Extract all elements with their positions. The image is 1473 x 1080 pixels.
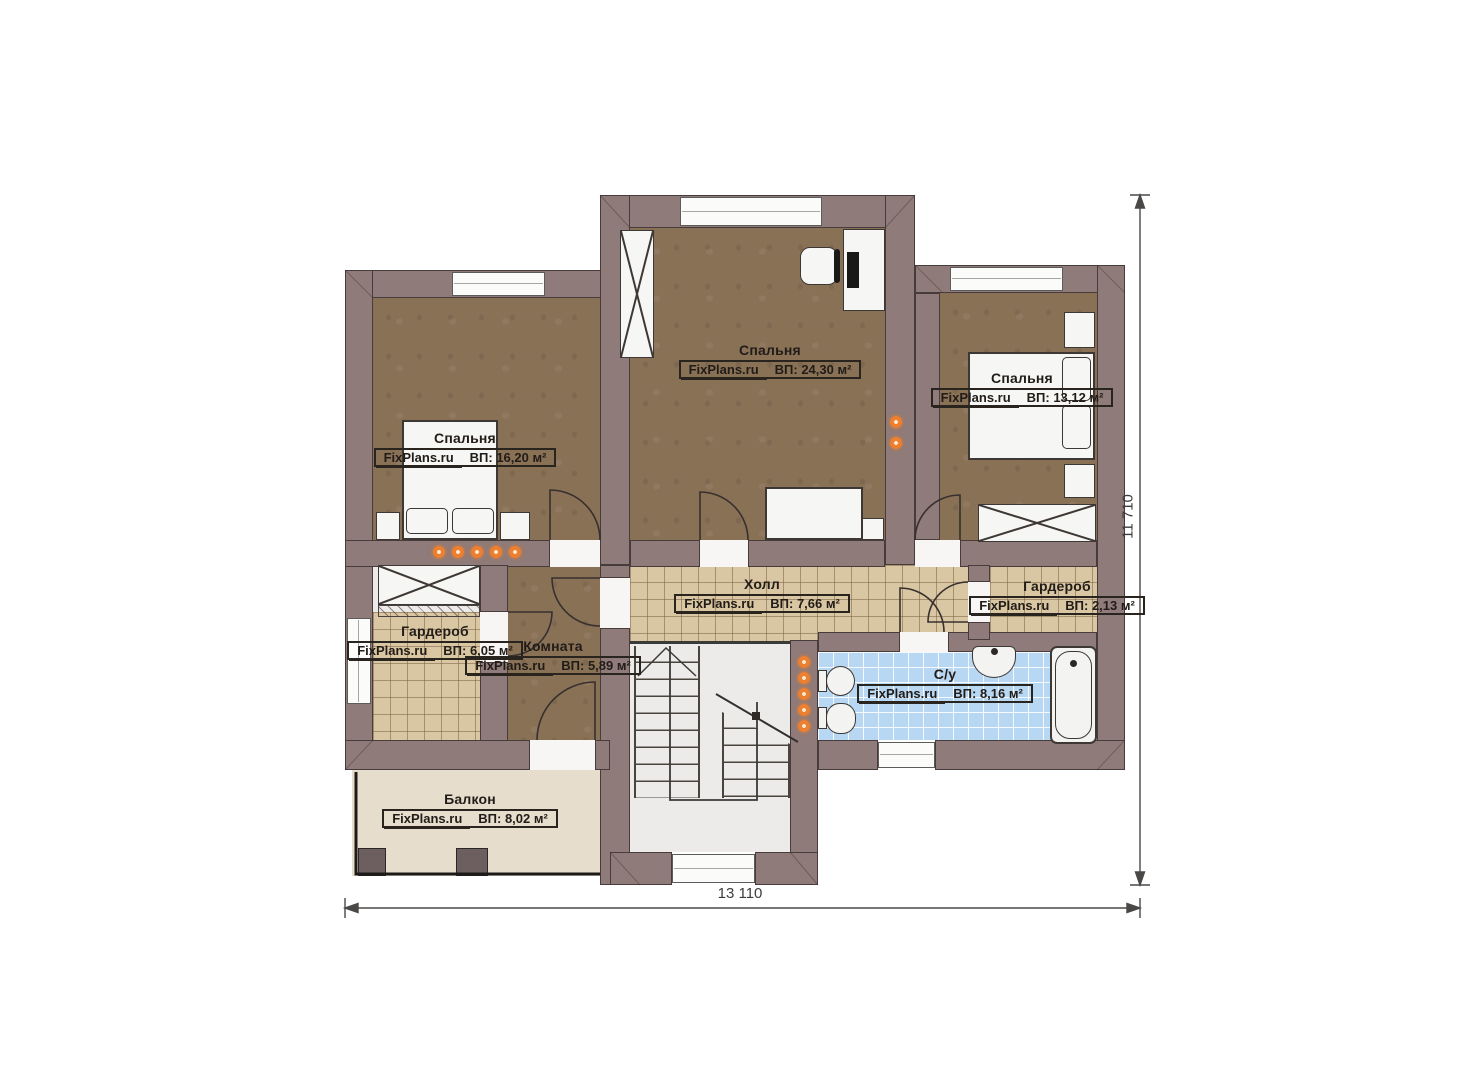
- door-opening: [530, 740, 595, 770]
- heating-dot: [798, 704, 810, 716]
- room-name: Балкон: [444, 791, 496, 807]
- watermark: FixPlans.ru: [933, 389, 1019, 408]
- room-name: Спальня: [991, 370, 1053, 386]
- chair-backrest: [834, 249, 840, 283]
- bathtub: [1050, 646, 1097, 744]
- window: [452, 272, 545, 296]
- room-name: С/у: [934, 666, 956, 682]
- wall: [595, 740, 610, 770]
- wall: [345, 740, 530, 770]
- room-label-balcony: Балкон FixPlans.ruВП: 8,02 м²: [405, 791, 535, 828]
- hall-stair-edge: [630, 641, 790, 644]
- door-opening: [550, 540, 600, 567]
- heating-dot: [798, 688, 810, 700]
- balcony-post: [456, 848, 488, 876]
- nightstand: [500, 512, 530, 540]
- dimension-width-label: 13 110: [660, 885, 820, 902]
- wardrobe-cabinet: [378, 565, 480, 605]
- heating-dot: [798, 656, 810, 668]
- heating-dot: [471, 546, 483, 558]
- pillow: [406, 508, 448, 534]
- nightstand: [862, 518, 884, 540]
- heating-dot: [890, 437, 902, 449]
- stair-flight: [634, 646, 700, 798]
- watermark: FixPlans.ru: [859, 685, 945, 704]
- nightstand: [376, 512, 400, 540]
- room-label-bathroom: С/у FixPlans.ruВП: 8,16 м²: [880, 666, 1010, 703]
- door-opening: [900, 632, 948, 652]
- room-label-wardrobe-left: Гардероб FixPlans.ruВП: 6,05 м²: [370, 623, 500, 660]
- floor-plan: Спальня FixPlans.ruВП: 24,30 м² Спальня …: [0, 0, 1473, 1080]
- heating-dot: [798, 672, 810, 684]
- stair-flight: [722, 712, 790, 798]
- door-opening: [915, 540, 960, 567]
- window: [950, 267, 1063, 291]
- room-area: ВП: 5,89 м²: [553, 657, 639, 674]
- desk-chair: [800, 247, 838, 285]
- wall: [818, 740, 878, 770]
- window: [680, 197, 822, 226]
- pillow: [452, 508, 494, 534]
- dimension-height-label: 11 710: [1120, 477, 1137, 557]
- wall: [968, 565, 990, 582]
- pillow: [1062, 405, 1091, 449]
- room-area: ВП: 7,66 м²: [762, 595, 848, 612]
- wall: [610, 852, 672, 885]
- watermark: FixPlans.ru: [384, 810, 470, 829]
- monitor: [847, 252, 859, 288]
- door-opening: [700, 540, 748, 567]
- room-label-wardrobe-right: Гардероб FixPlans.ruВП: 2,13 м²: [992, 578, 1122, 615]
- wardrobe-cabinet: [620, 230, 654, 358]
- room-area: ВП: 24,30 м²: [767, 361, 860, 378]
- room-area: ВП: 2,13 м²: [1057, 597, 1143, 614]
- wall: [885, 195, 915, 565]
- room-area: ВП: 8,16 м²: [945, 685, 1031, 702]
- room-label-room: Комната FixPlans.ruВП: 5,89 м²: [488, 638, 618, 675]
- room-name: Гардероб: [401, 623, 469, 639]
- watermark: FixPlans.ru: [376, 449, 462, 468]
- room-area: ВП: 13,12 м²: [1019, 389, 1112, 406]
- door-opening: [600, 578, 630, 628]
- watermark: FixPlans.ru: [676, 595, 762, 614]
- wall: [630, 540, 700, 567]
- wall: [935, 740, 1125, 770]
- heating-dot: [452, 546, 464, 558]
- heating-dot: [433, 546, 445, 558]
- wall: [480, 565, 508, 612]
- wall: [818, 632, 900, 652]
- heating-dot: [890, 416, 902, 428]
- room-label-bedroom-top: Спальня FixPlans.ruВП: 24,30 м²: [705, 342, 835, 379]
- nightstand: [1064, 312, 1095, 348]
- toilet: [818, 666, 856, 696]
- room-name: Спальня: [739, 342, 801, 358]
- watermark: FixPlans.ru: [971, 597, 1057, 616]
- room-label-bedroom-right: Спальня FixPlans.ruВП: 13,12 м²: [957, 370, 1087, 407]
- window: [878, 742, 935, 768]
- heating-dot: [509, 546, 521, 558]
- room-label-bedroom-left: Спальня FixPlans.ruВП: 16,20 м²: [400, 430, 530, 467]
- room-area: ВП: 16,20 м²: [462, 449, 555, 466]
- wall: [960, 540, 1097, 567]
- watermark: FixPlans.ru: [681, 361, 767, 380]
- room-name: Холл: [744, 576, 780, 592]
- heating-dot: [798, 720, 810, 732]
- watermark: FixPlans.ru: [349, 642, 435, 661]
- window: [672, 854, 755, 883]
- room-name: Гардероб: [1023, 578, 1091, 594]
- balcony-post: [358, 848, 386, 876]
- bidet: [818, 701, 856, 735]
- window: [347, 618, 371, 704]
- wall: [748, 540, 885, 567]
- wardrobe-cabinet: [978, 504, 1096, 542]
- bed: [765, 487, 863, 540]
- wall: [755, 852, 818, 885]
- shelving-hatch: [378, 605, 480, 617]
- room-name: Комната: [523, 638, 583, 654]
- room-area: ВП: 8,02 м²: [470, 810, 556, 827]
- heating-dot: [490, 546, 502, 558]
- room-label-hall: Холл FixPlans.ruВП: 7,66 м²: [697, 576, 827, 613]
- room-name: Спальня: [434, 430, 496, 446]
- wall: [915, 293, 940, 540]
- nightstand: [1064, 464, 1095, 498]
- wall: [600, 565, 630, 578]
- wall: [968, 622, 990, 640]
- watermark: FixPlans.ru: [467, 657, 553, 676]
